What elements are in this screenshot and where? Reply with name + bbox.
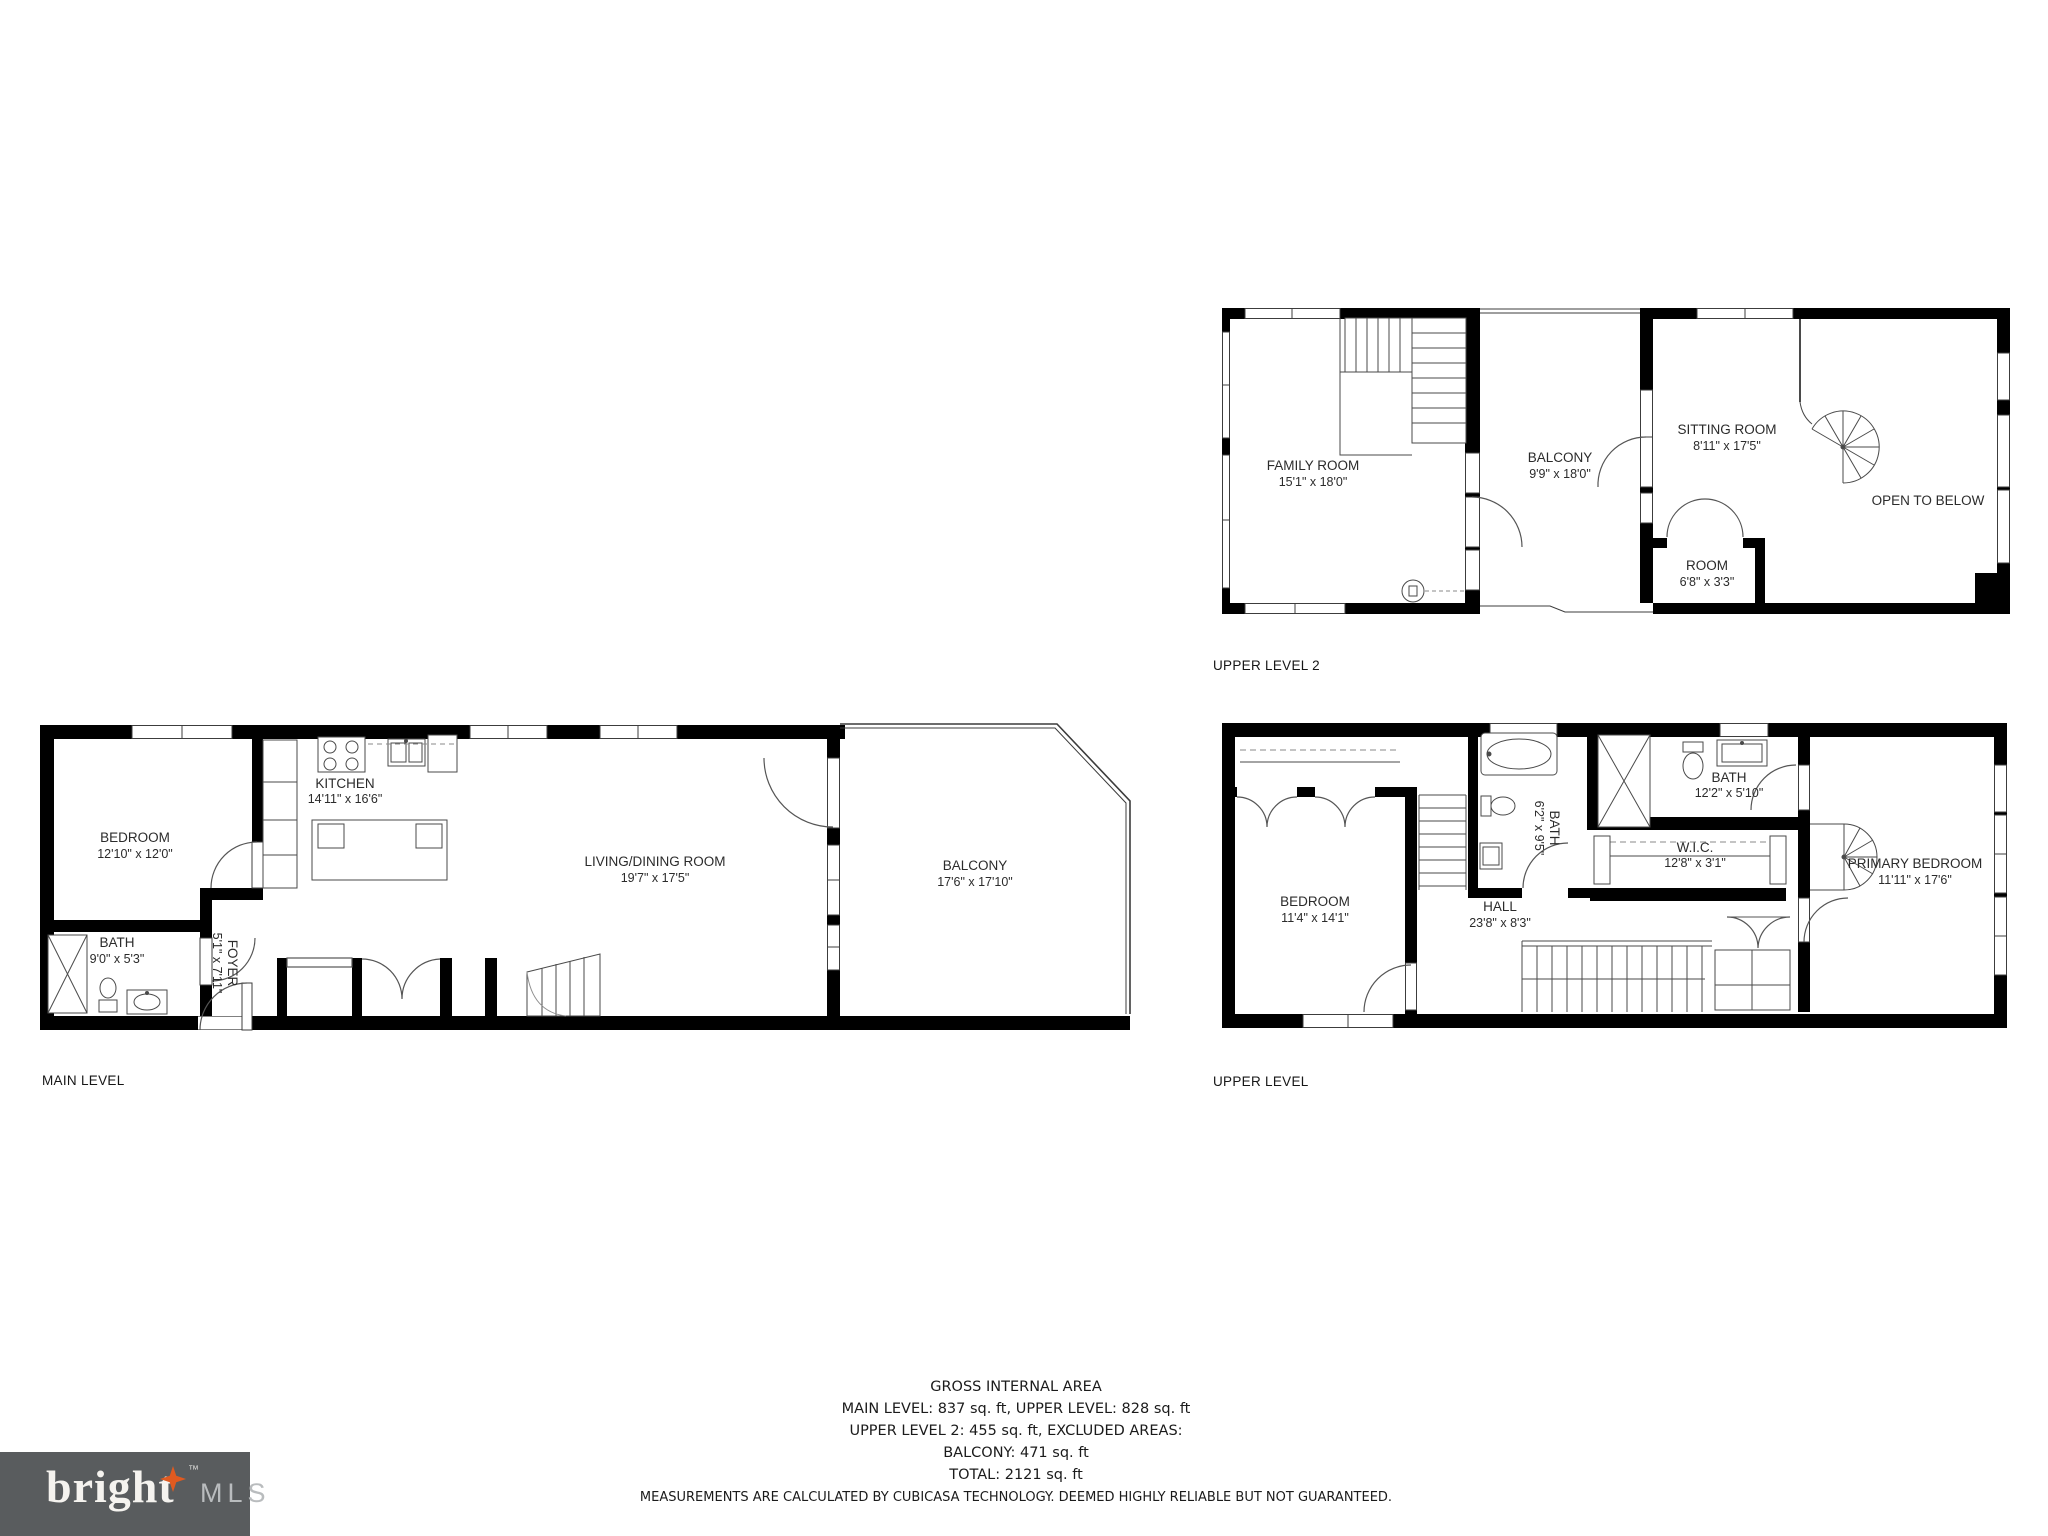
room-dims-upper-bath1: 6'2" x 9'5" xyxy=(1532,801,1546,856)
logo-suffix-text: MLS xyxy=(200,1478,271,1509)
room-label-open-to-below: OPEN TO BELOW xyxy=(1872,493,1985,508)
gross-area-title: GROSS INTERNAL AREA xyxy=(0,1376,2032,1398)
gross-area-summary: GROSS INTERNAL AREA MAIN LEVEL: 837 sq. … xyxy=(0,1376,2032,1509)
upper-level2-plan: FAMILY ROOM 15'1" x 18'0" BALCONY 9'9" x… xyxy=(1213,308,2010,673)
upper-level-plan: BEDROOM 11'4" x 14'1" BATH 6'2" x 9'5" H… xyxy=(1213,723,2007,1089)
main-level-stairs xyxy=(527,954,600,1016)
upper-shower xyxy=(1598,735,1650,827)
room-label-foyer: FOYER xyxy=(225,940,240,987)
stairs-to-upper2 xyxy=(1419,795,1466,890)
room-label-upper-bedroom: BEDROOM xyxy=(1280,894,1350,909)
room-label-ul2-balcony: BALCONY xyxy=(1528,450,1593,465)
level-label-upper2: UPPER LEVEL 2 xyxy=(1213,658,1320,673)
hall-closet xyxy=(1715,917,1790,1010)
family-room-stairs xyxy=(1340,318,1466,455)
floorplan-canvas: BEDROOM 12'10" x 12'0" BATH 9'0" x 5'3" … xyxy=(0,0,2048,1536)
room-label-main-balcony: BALCONY xyxy=(943,858,1008,873)
hall-staircase xyxy=(1522,941,1712,1012)
room-label-living: LIVING/DINING ROOM xyxy=(584,854,725,869)
room-label-main-bath: BATH xyxy=(99,935,134,950)
room-label-room: ROOM xyxy=(1686,558,1728,573)
room-label-upper-bath1-group: BATH 6'2" x 9'5" xyxy=(1532,801,1562,856)
room-label-upper-bath2: BATH xyxy=(1711,770,1746,785)
floorplan-page: { "plans": { "main": { "label": "MAIN LE… xyxy=(0,0,2048,1536)
room-dims-room: 6'8" x 3'3" xyxy=(1680,575,1735,589)
logo-brand-text: bright xyxy=(46,1460,175,1513)
room-dims-ul2-balcony: 9'9" x 18'0" xyxy=(1529,467,1591,481)
room-dims-kitchen: 14'11" x 16'6" xyxy=(308,792,383,806)
room-dims-main-bedroom: 12'10" x 12'0" xyxy=(97,847,173,861)
main-level-plan: BEDROOM 12'10" x 12'0" BATH 9'0" x 5'3" … xyxy=(40,724,1130,1088)
room-label-main-bedroom: BEDROOM xyxy=(100,830,170,845)
room-dims-upper-bath2: 12'2" x 5'10" xyxy=(1695,786,1764,800)
star-icon xyxy=(160,1466,186,1492)
room-label-hall: HALL xyxy=(1483,899,1517,914)
logo-trademark: ™ xyxy=(188,1464,199,1476)
room-label-primary: PRIMARY BEDROOM xyxy=(1848,856,1983,871)
gross-area-line-main-upper: MAIN LEVEL: 837 sq. ft, UPPER LEVEL: 828… xyxy=(0,1398,2032,1420)
water-heater-icon xyxy=(1402,580,1464,602)
upper-level2-doors xyxy=(1472,437,1743,547)
room-dims-primary: 11'11" x 17'6" xyxy=(1878,873,1952,887)
room-label-foyer-group: FOYER 5'1" x 7'11" xyxy=(210,933,240,994)
room-label-wic: W.I.C. xyxy=(1677,840,1714,855)
room-label-kitchen: KITCHEN xyxy=(315,776,374,791)
kitchen-island xyxy=(312,820,447,880)
level-label-main: MAIN LEVEL xyxy=(42,1073,125,1088)
room-dims-main-balcony: 17'6" x 17'10" xyxy=(937,875,1013,889)
gross-area-line-total: TOTAL: 2121 sq. ft xyxy=(0,1464,2032,1486)
room-dims-hall: 23'8" x 8'3" xyxy=(1469,916,1531,930)
spiral-staircase xyxy=(1800,319,1879,483)
bedroom-bifold-doors xyxy=(1237,797,1375,827)
level-label-upper: UPPER LEVEL xyxy=(1213,1074,1309,1089)
room-dims-family: 15'1" x 18'0" xyxy=(1279,475,1348,489)
room-dims-upper-bedroom: 11'4" x 14'1" xyxy=(1281,911,1349,925)
gross-area-line-upper2: UPPER LEVEL 2: 455 sq. ft, EXCLUDED AREA… xyxy=(0,1420,2032,1442)
bedroom-closet xyxy=(1240,750,1400,762)
room-label-upper-bath1: BATH xyxy=(1547,810,1562,845)
room-dims-wic: 12'8" x 3'1" xyxy=(1664,856,1726,870)
gross-area-line-balcony: BALCONY: 471 sq. ft xyxy=(0,1442,2032,1464)
brightmls-logo: bright ™ MLS xyxy=(0,1452,250,1536)
room-label-family: FAMILY ROOM xyxy=(1267,458,1360,473)
measurement-disclaimer: MEASUREMENTS ARE CALCULATED BY CUBICASA … xyxy=(0,1487,2032,1509)
room-dims-living: 19'7" x 17'5" xyxy=(621,871,690,885)
room-dims-main-bath: 9'0" x 5'3" xyxy=(90,952,145,966)
room-label-sitting: SITTING ROOM xyxy=(1678,422,1777,437)
room-dims-sitting: 8'11" x 17'5" xyxy=(1693,439,1761,453)
room-dims-foyer: 5'1" x 7'11" xyxy=(210,933,224,994)
